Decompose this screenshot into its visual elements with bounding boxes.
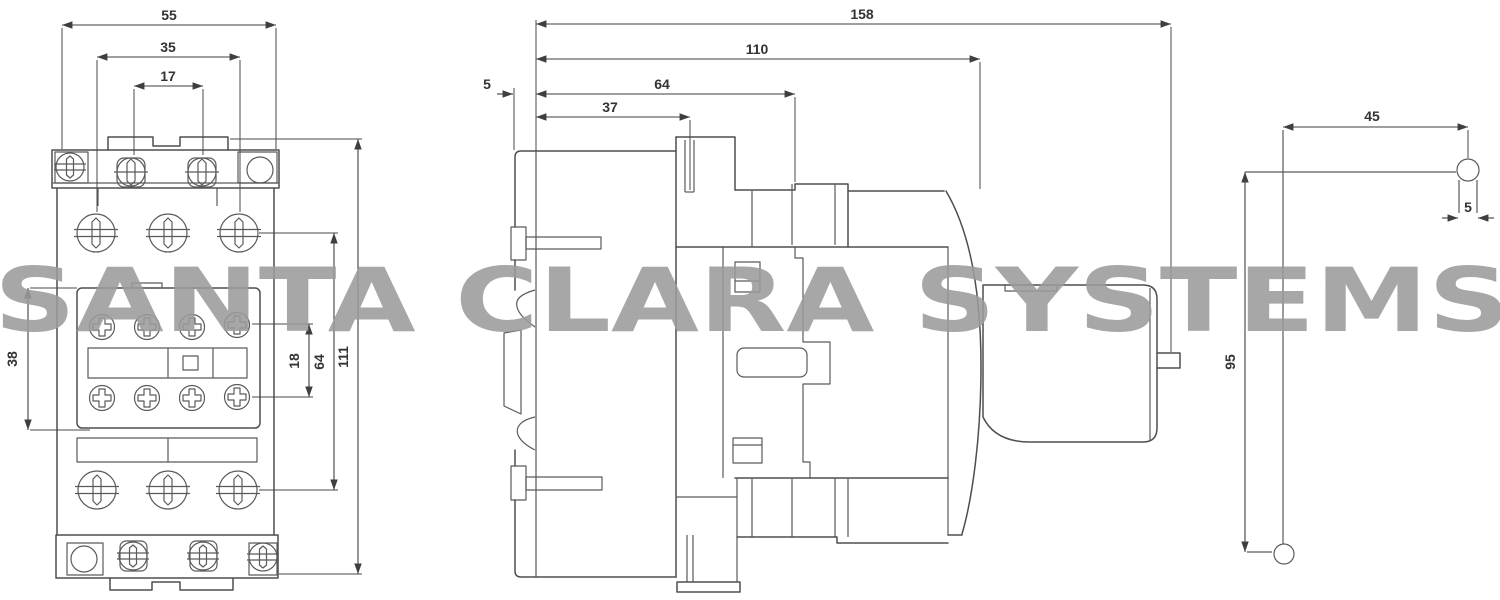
dim-label-screw-row-spacing: 64 (311, 354, 327, 370)
dim-label-horizontal-reach: 45 (1364, 108, 1380, 124)
dim-label-aux-height: 38 (4, 351, 20, 367)
screw-icon (185, 158, 219, 186)
front-outline (52, 137, 279, 590)
aux-screw-icon (225, 385, 250, 410)
side-outline (504, 137, 1180, 592)
main-screw-icon (146, 214, 190, 252)
contactor-dimension-drawing: 55 35 17 38 18 64 111 (0, 0, 1500, 600)
screw-icon (117, 542, 149, 570)
main-screw-icon (216, 471, 260, 509)
dim-label-aux-terminal-depth: 64 (654, 76, 670, 92)
screw-icon (187, 542, 219, 570)
dim-label-din-clip-depth: 5 (483, 76, 491, 92)
dim-label-pin-width: 5 (1464, 199, 1472, 215)
mounting-hole-icon (247, 157, 273, 183)
watermark-text: SANTA CLARA SYSTEMS (0, 249, 1500, 352)
pin-icon (1457, 159, 1479, 181)
aux-screw-icon (180, 386, 205, 411)
dim-label-mounting-width: 35 (160, 39, 176, 55)
dim-label-terminal-spacing: 17 (160, 68, 176, 84)
aux-screw-icon (135, 386, 160, 411)
dim-label-fin-depth: 37 (602, 99, 618, 115)
aux-screw-icon (90, 386, 115, 411)
technical-drawing-page: 55 35 17 38 18 64 111 (0, 0, 1500, 600)
main-screw-icon (146, 471, 190, 509)
screw-icon (114, 158, 148, 186)
dim-label-vertical-length: 95 (1222, 354, 1238, 370)
dim-label-aux-screw-spacing: 18 (286, 353, 302, 369)
main-screw-icon (75, 471, 119, 509)
dim-label-body-depth: 110 (746, 41, 769, 57)
main-screw-icon (74, 214, 118, 252)
pivot-point-icon (1274, 544, 1294, 564)
dim-label-overall-depth: 158 (850, 6, 874, 22)
screw-icon (54, 153, 86, 181)
main-screw-icon (217, 214, 261, 252)
screw-icon (247, 543, 279, 571)
dim-label-overall-width: 55 (161, 7, 177, 23)
mounting-hole-icon (71, 546, 97, 572)
